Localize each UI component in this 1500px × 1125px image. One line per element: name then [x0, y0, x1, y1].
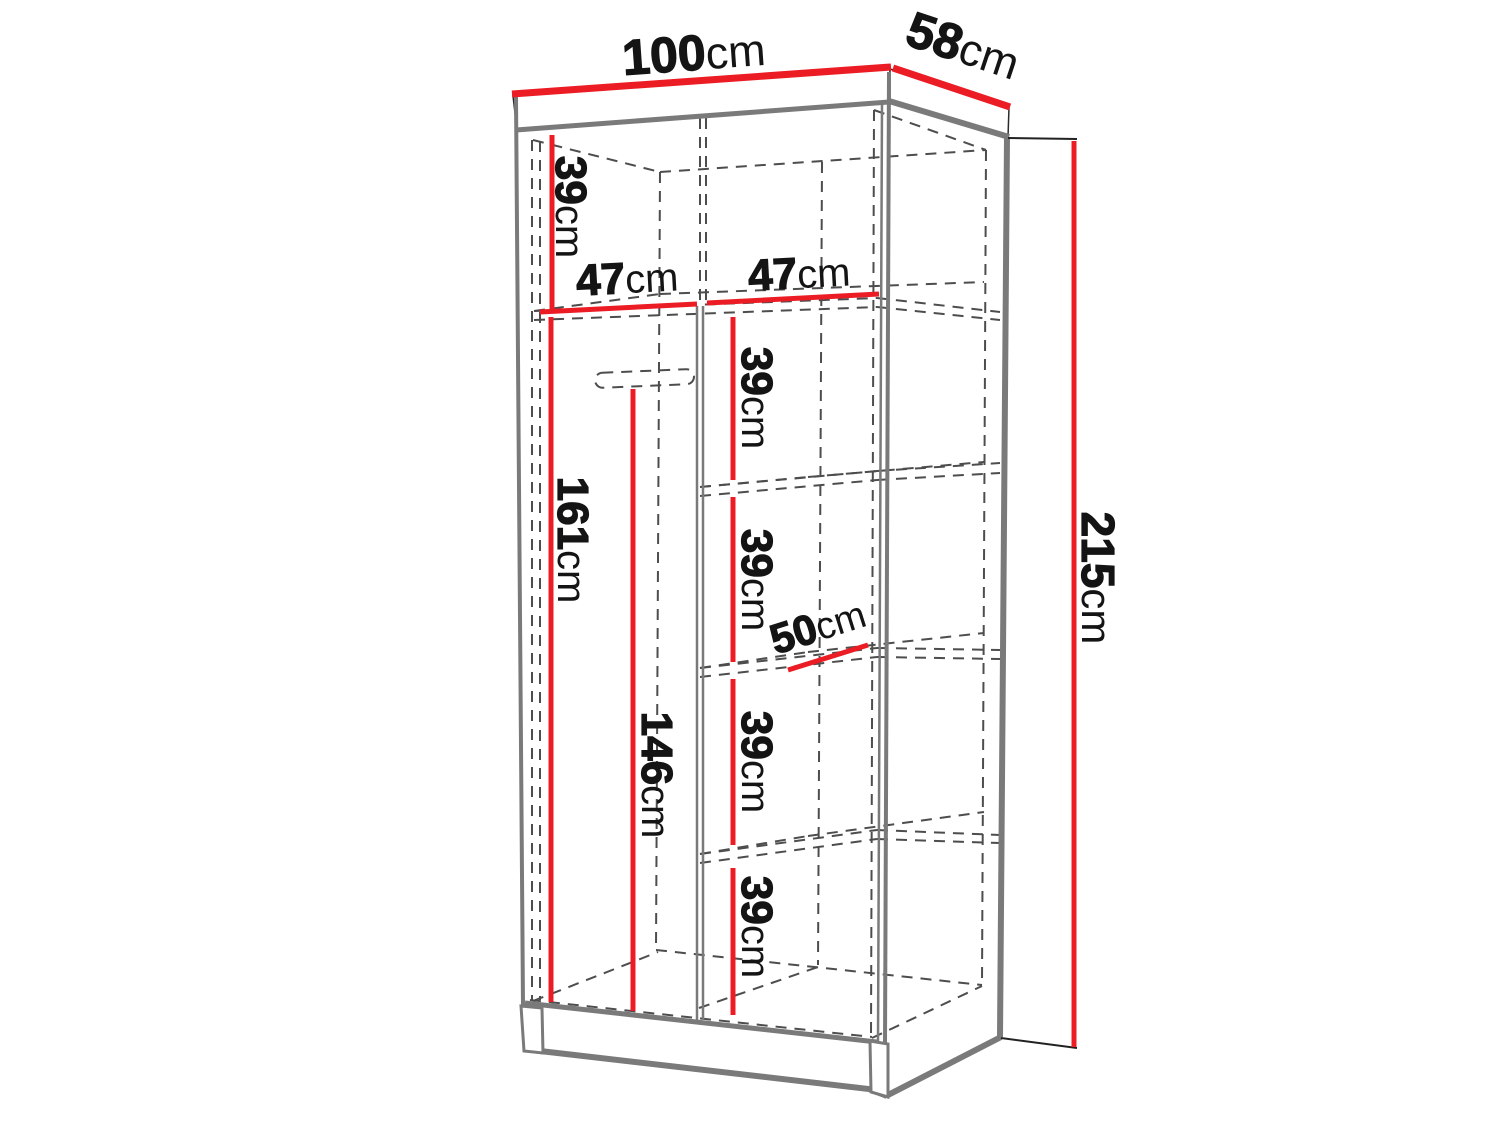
height-bracket: [1001, 138, 1077, 1048]
label-shelf-depth: 50cm: [764, 589, 871, 663]
label-rail-height: 146cm: [632, 712, 681, 839]
label-width: 100cm: [620, 20, 767, 86]
front-right-leg: [870, 1041, 888, 1097]
label-left-width: 47cm: [575, 251, 680, 305]
right-wall-inner-edge: [871, 110, 874, 1038]
shelf-left-depth-edge: [700, 477, 808, 487]
label-height: 215cm: [1072, 512, 1124, 645]
height-bracket-bottom: [1001, 1038, 1077, 1048]
label-top-gap: 39cm: [546, 156, 595, 258]
label-hanging-height: 161cm: [548, 477, 597, 604]
shelf-front-bottom-edge: [700, 480, 877, 496]
height-bracket-top: [1008, 138, 1077, 139]
diagram-canvas: 100cm 58cm 215cm 39cm 47cm 47cm 161cm 14…: [0, 0, 1500, 1125]
label-shelf-gap-1: 39cm: [732, 347, 781, 449]
wardrobe-dimension-diagram: 100cm 58cm 215cm 39cm 47cm 47cm 161cm 14…: [0, 0, 1500, 1125]
shelf-left-depth-edge: [700, 836, 808, 854]
front-left-leg: [521, 1006, 543, 1053]
label-shelf-gap-4: 39cm: [732, 876, 781, 978]
left-front-edge: [516, 97, 523, 1005]
shelf-front-bottom-edge: [700, 657, 877, 677]
label-shelf-gap-3: 39cm: [732, 711, 781, 813]
side-panel: [887, 102, 1008, 1096]
hanging-rail: [595, 369, 695, 388]
label-right-width: 47cm: [747, 246, 852, 300]
